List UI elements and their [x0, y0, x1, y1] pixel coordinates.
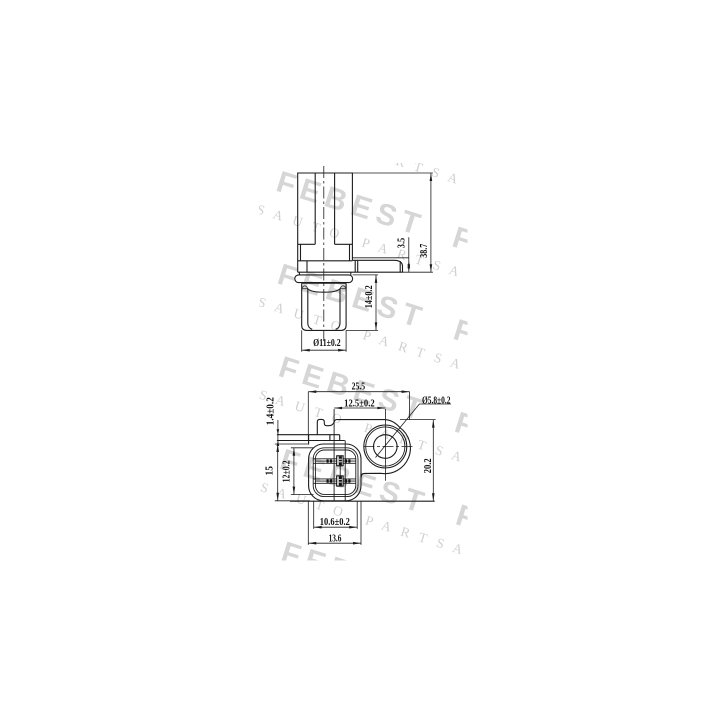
svg-text:13.6: 13.6	[329, 532, 342, 544]
svg-text:25.5: 25.5	[352, 380, 366, 392]
svg-text:14±0.2: 14±0.2	[363, 285, 375, 308]
svg-text:Ø11±0.2: Ø11±0.2	[313, 337, 341, 349]
svg-text:15: 15	[263, 466, 275, 476]
svg-text:12±0.2: 12±0.2	[281, 460, 293, 482]
svg-text:20.2: 20.2	[422, 458, 434, 473]
svg-text:1.4±0.2: 1.4±0.2	[264, 397, 276, 425]
svg-text:38.7: 38.7	[418, 243, 430, 257]
svg-text:3.5: 3.5	[396, 237, 408, 248]
svg-text:Ø5.8±0.2: Ø5.8±0.2	[422, 394, 451, 406]
svg-text:10.6±0.2: 10.6±0.2	[320, 516, 350, 528]
svg-text:12.5±0.2: 12.5±0.2	[344, 398, 375, 410]
